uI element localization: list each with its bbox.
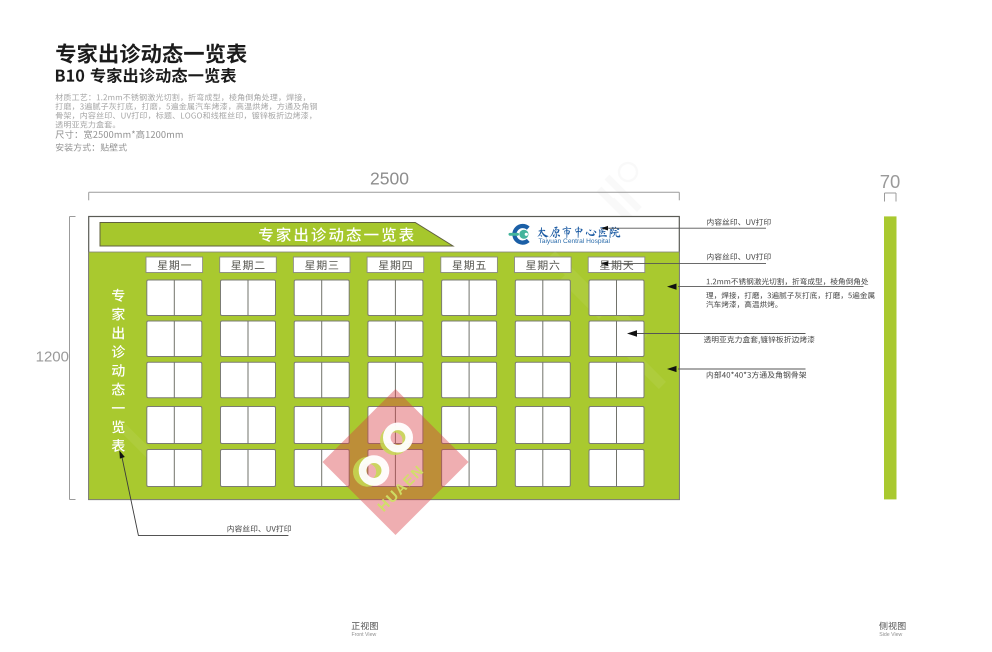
svg-text:Side View: Side View: [879, 632, 902, 638]
svg-text:1200: 1200: [36, 349, 69, 366]
svg-text:70: 70: [880, 171, 901, 192]
svg-text:Front View: Front View: [352, 632, 377, 638]
svg-text:2500: 2500: [370, 168, 409, 188]
svg-text:Taiyuan Central Hospital: Taiyuan Central Hospital: [539, 238, 611, 245]
